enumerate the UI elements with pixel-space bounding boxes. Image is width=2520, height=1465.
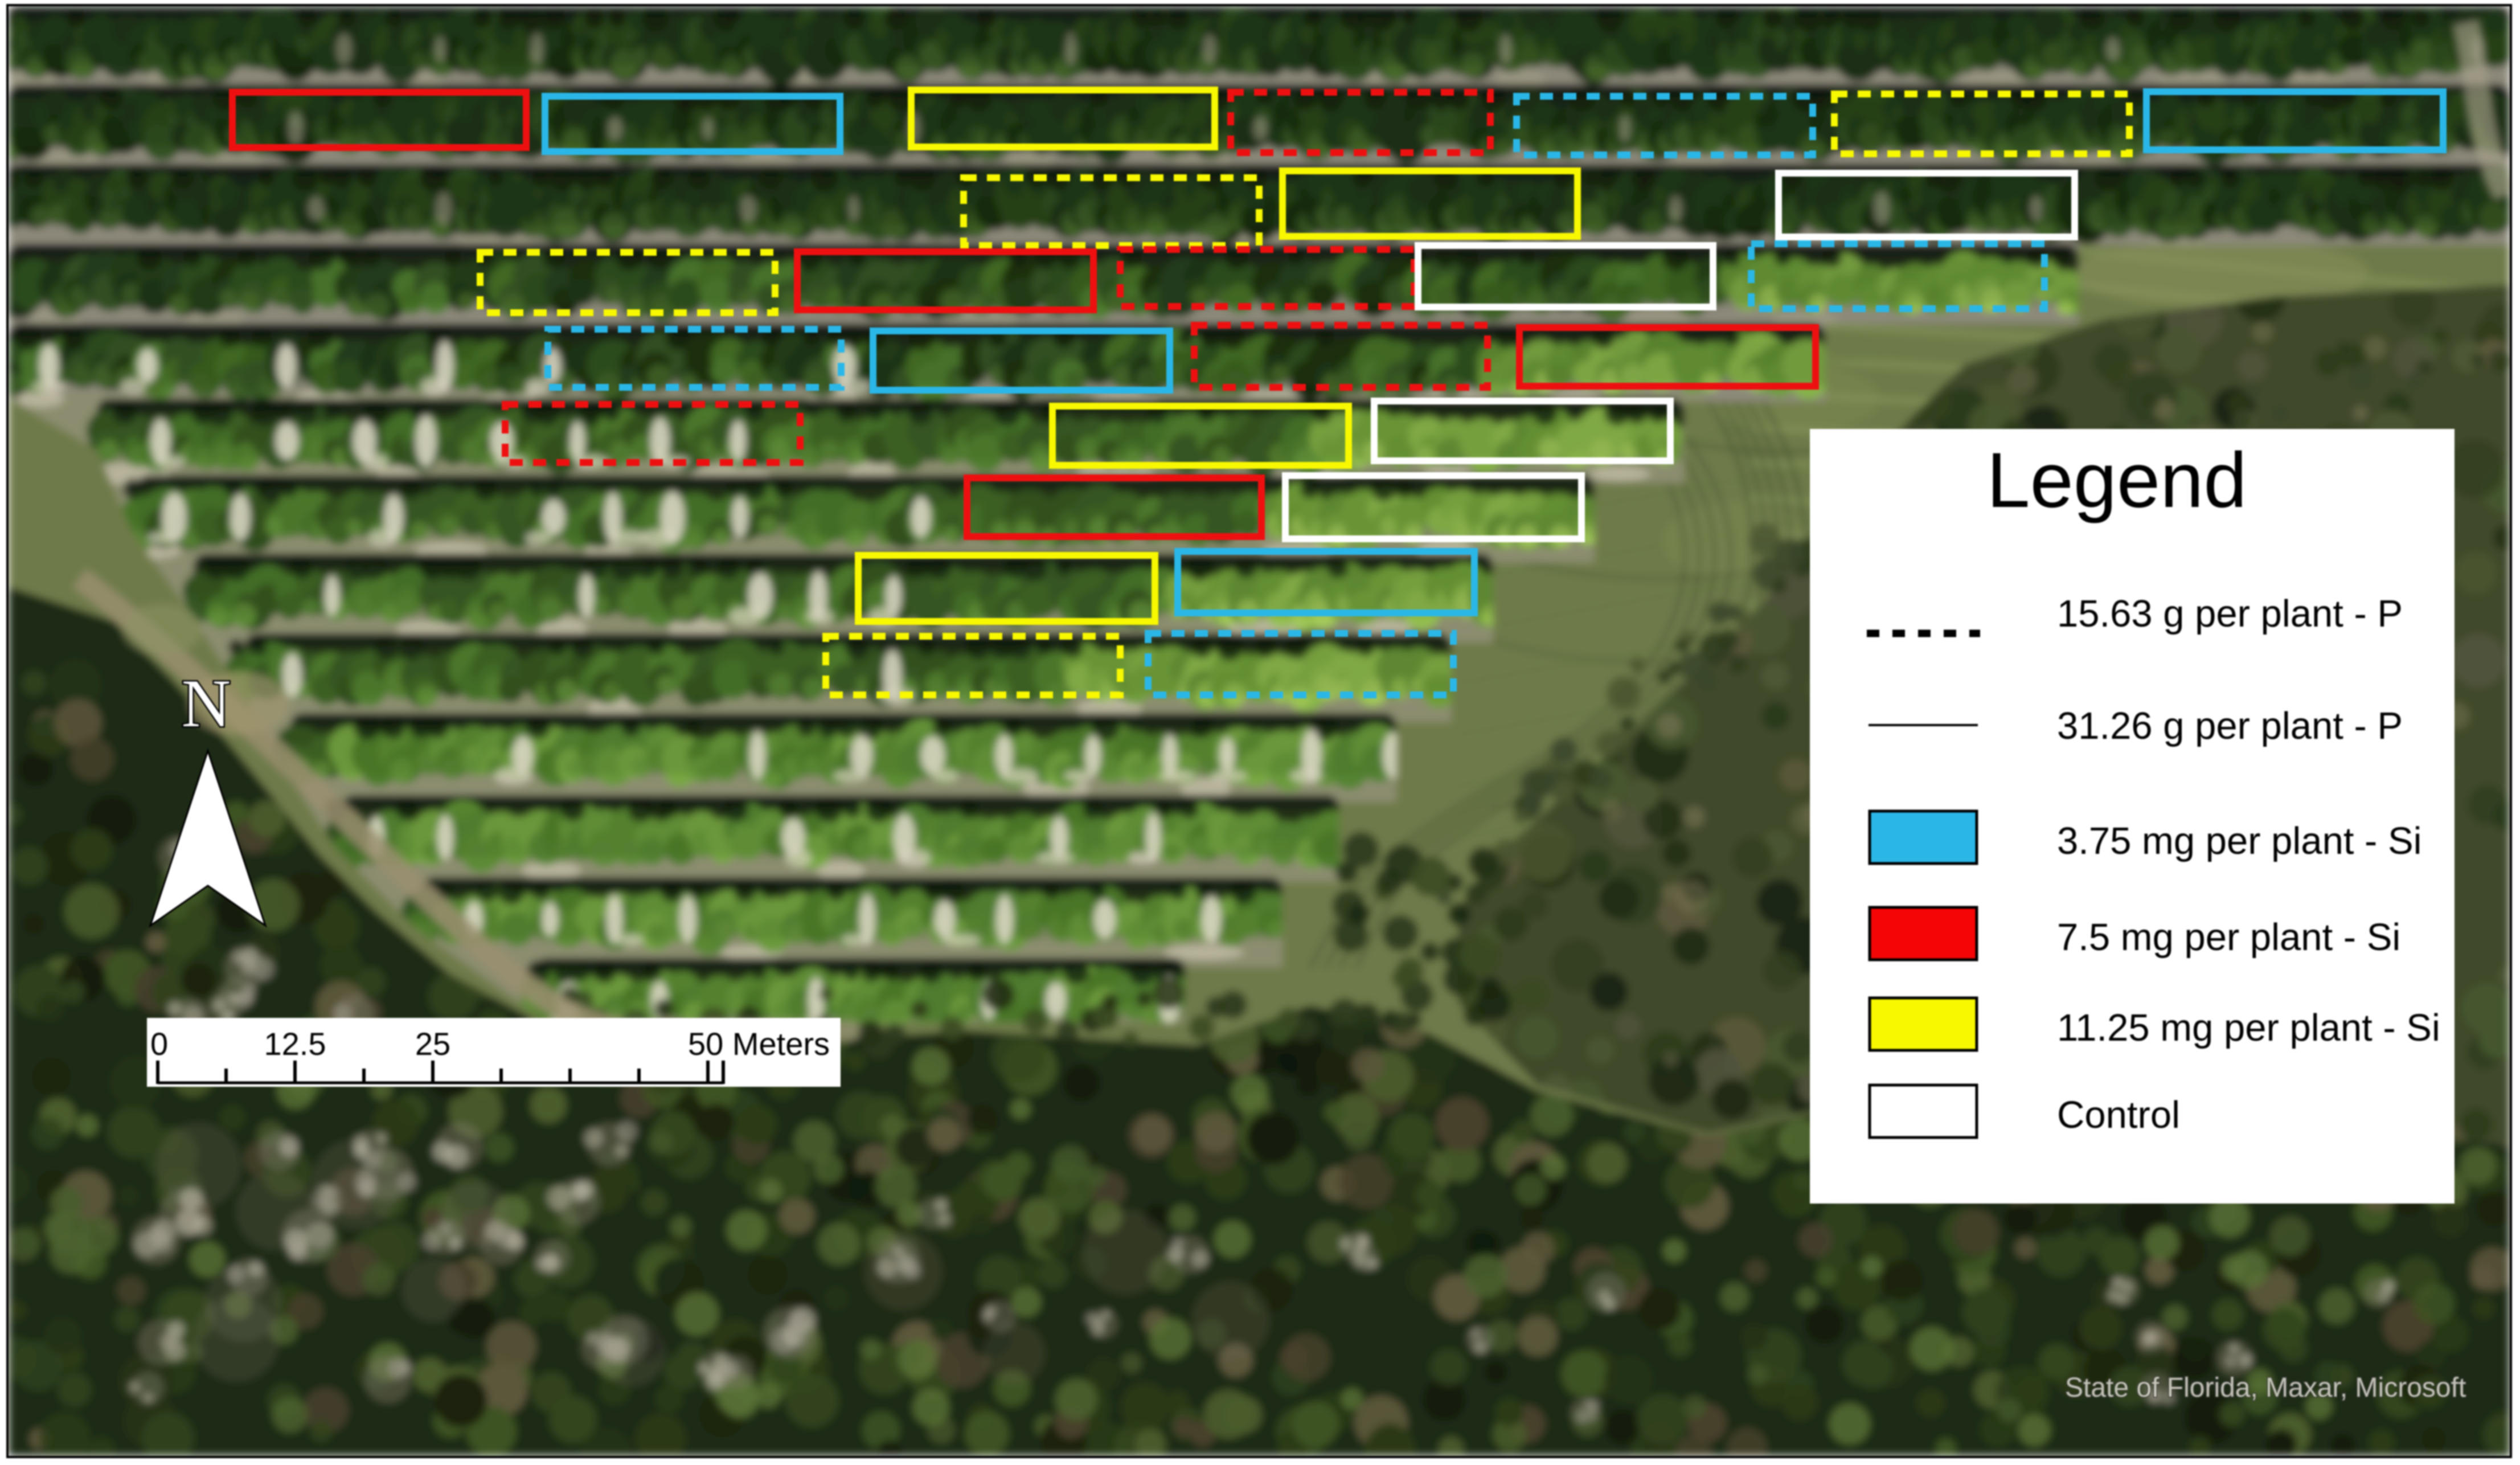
svg-text:State of Florida, Maxar, Micro: State of Florida, Maxar, Microsoft bbox=[2065, 1373, 2466, 1403]
svg-text:N: N bbox=[182, 665, 231, 741]
svg-text:Legend: Legend bbox=[1986, 437, 2247, 524]
svg-text:50 Meters: 50 Meters bbox=[688, 1026, 830, 1062]
svg-text:31.26 g per plant - P: 31.26 g per plant - P bbox=[2057, 705, 2403, 747]
svg-text:3.75 mg per plant - Si: 3.75 mg per plant - Si bbox=[2057, 820, 2422, 862]
svg-text:12.5: 12.5 bbox=[264, 1026, 326, 1062]
svg-text:11.25 mg per plant - Si: 11.25 mg per plant - Si bbox=[2057, 1006, 2440, 1049]
svg-text:15.63 g per plant - P: 15.63 g per plant - P bbox=[2057, 592, 2403, 635]
svg-text:0: 0 bbox=[150, 1026, 168, 1062]
svg-text:7.5 mg per plant - Si: 7.5 mg per plant - Si bbox=[2057, 916, 2400, 959]
svg-text:25: 25 bbox=[415, 1026, 450, 1062]
svg-text:Control: Control bbox=[2057, 1094, 2180, 1136]
